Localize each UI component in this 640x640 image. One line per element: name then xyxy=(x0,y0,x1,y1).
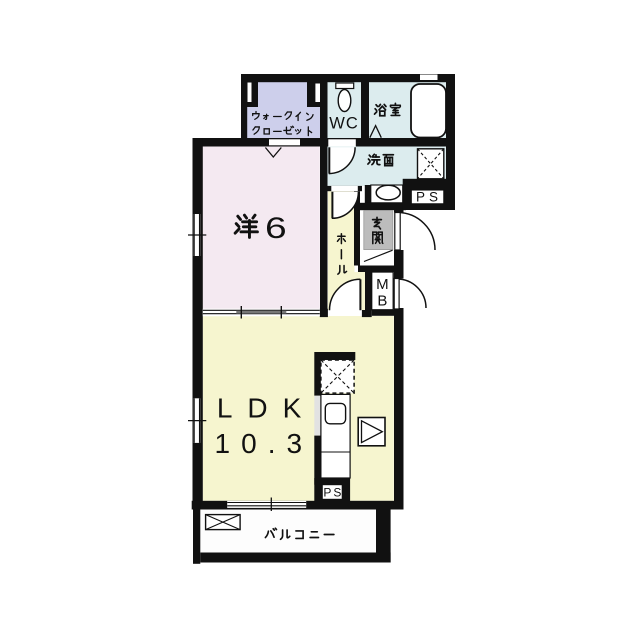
svg-text:M: M xyxy=(376,276,389,293)
svg-text:10.3: 10.3 xyxy=(215,428,314,459)
svg-text:B: B xyxy=(377,293,387,310)
svg-text:PS: PS xyxy=(416,190,442,205)
svg-text:LDK: LDK xyxy=(217,393,316,424)
svg-text:PS: PS xyxy=(323,486,343,500)
svg-text:6: 6 xyxy=(265,212,287,245)
svg-text:WC: WC xyxy=(329,115,359,133)
